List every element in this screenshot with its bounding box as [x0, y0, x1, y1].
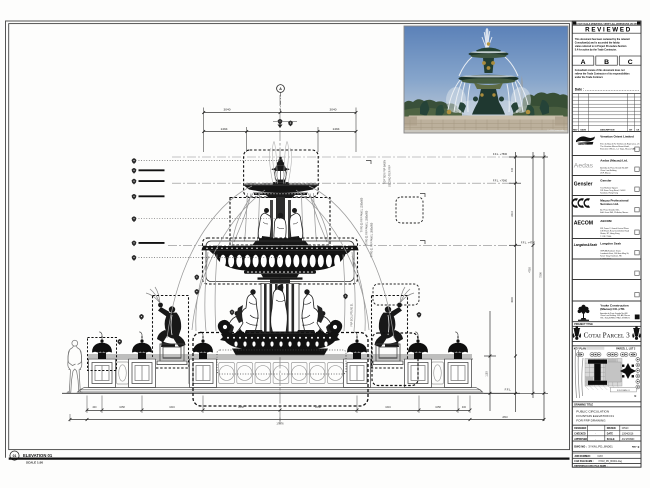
svg-text:400: 400	[92, 406, 97, 409]
svg-text:PROJECT TITLE: PROJECT TITLE	[574, 323, 593, 326]
svg-text:Kowloon, Hong Kong: Kowloon, Hong Kong	[600, 193, 618, 195]
svg-text:3YKM_PD_8N001: 3YKM_PD_8N001	[588, 445, 613, 449]
svg-text:Av. Praia Grande, 665,: Av. Praia Grande, 665,	[600, 209, 620, 212]
svg-text:Edif. Great Will, 12 Andar, Ma: Edif. Great Will, 12 Andar, Macau	[600, 211, 628, 214]
svg-text:SECOND TIER FRP: SECOND TIER FRP	[389, 165, 392, 187]
svg-text:under the Trade Contract.: under the Trade Contract.	[575, 76, 604, 79]
svg-text:Estr. da Baia de N. Senhora da: Estr. da Baia de N. Senhora da Esperanca…	[600, 143, 639, 146]
svg-text:B: B	[604, 59, 609, 66]
svg-text:138 Shatin Rural Committee Roa: 138 Shatin Rural Committee Road	[600, 230, 629, 233]
svg-text:AECOM: AECOM	[600, 219, 612, 223]
svg-text:Date :: Date :	[575, 88, 584, 92]
svg-text:2058: 2058	[238, 406, 244, 409]
svg-text:1494: 1494	[221, 127, 228, 131]
svg-text:CAD FILE NAME :: CAD FILE NAME :	[574, 460, 594, 463]
svg-text:A: A	[581, 59, 586, 66]
svg-text:2310: 2310	[511, 211, 514, 217]
svg-text:440: 440	[511, 167, 514, 172]
svg-text:JOB NUMBER :: JOB NUMBER :	[574, 456, 591, 458]
svg-text:DRAWN: DRAWN	[607, 427, 616, 430]
svg-text:REFERENCE DWG FILE NAME :: REFERENCE DWG FILE NAME :	[574, 464, 607, 467]
svg-text:Two Harbour Square: Two Harbour Square	[600, 187, 617, 190]
svg-text:DWG NO :: DWG NO :	[574, 445, 587, 449]
svg-text:C: C	[628, 59, 633, 66]
svg-text:Venetian Orient Limited: Venetian Orient Limited	[600, 135, 634, 139]
svg-text:TOP TIER FRP BASIN: TOP TIER FRP BASIN	[384, 160, 387, 184]
svg-text:T: 2317 7000: T: 2317 7000	[600, 236, 611, 238]
svg-text:TEL: 853-28788517 FAX: 287885: TEL: 853-28788517 FAX: 28788571	[600, 317, 630, 320]
svg-text:status referred to in Projec: status referred to in Project Procedure …	[575, 45, 627, 48]
svg-text:FRP SCULPTURE 01: FRP SCULPTURE 01	[351, 303, 354, 327]
svg-text:DATE: DATE	[581, 128, 587, 131]
svg-text:PARCEL 1, LOT 2: PARCEL 1, LOT 2	[616, 348, 636, 351]
svg-text:FOUNTAIN ELEVATION 01: FOUNTAIN ELEVATION 01	[576, 414, 614, 418]
svg-text:Gensler: Gensler	[574, 182, 593, 188]
svg-text:F.F.L. +7060: F.F.L. +7060	[493, 178, 508, 182]
svg-text:DO NOT SCALE DRAWINGS. VERIFY: DO NOT SCALE DRAWINGS. VERIFY ALL DIMENS…	[575, 22, 639, 25]
svg-text:FOR FRP DRAWING: FOR FRP DRAWING	[576, 418, 606, 422]
svg-text:3040: 3040	[330, 108, 337, 112]
svg-text:PUBLIC CIRCULATION: PUBLIC CIRCULATION	[576, 410, 609, 414]
svg-text:Shatin, NT, Hong Kong: Shatin, NT, Hong Kong	[600, 232, 619, 235]
svg-text:The Venetian Macao-Resort-Hote: The Venetian Macao-Resort-Hotel,	[600, 145, 630, 148]
svg-text:© rf123 concorde: © rf123 concorde	[547, 129, 565, 132]
svg-text:R E V I E W E D: R E V I E W E D	[585, 27, 631, 34]
svg-text:Aedas (Macau) Ltd.: Aedas (Macau) Ltd.	[600, 159, 628, 163]
svg-text:1616: 1616	[169, 406, 175, 409]
svg-text:8/F, Tower 2, Grand Central Pl: 8/F, Tower 2, Grand Central Plaza	[600, 227, 629, 230]
svg-text:APPROVED: APPROVED	[574, 438, 587, 441]
svg-text:Executive Offices - L2, Taipa,: Executive Offices - L2, Taipa, Macau SAR	[600, 148, 636, 151]
svg-text:TYPE 01 FRP PANEL 1800x950: TYPE 01 FRP PANEL 1800x950	[371, 222, 374, 257]
svg-text:13/04/2016: 13/04/2016	[622, 434, 634, 436]
svg-text:Venetian: Venetian	[578, 143, 587, 146]
svg-text:2058: 2058	[315, 406, 321, 409]
svg-text:4750: 4750	[529, 267, 532, 273]
svg-text:DRAWING TITLE: DRAWING TITLE	[574, 404, 593, 407]
svg-text:F.F.L.: F.F.L.	[505, 388, 512, 392]
svg-text:3YKM_PD_8N001.dwg: 3YKM_PD_8N001.dwg	[598, 461, 622, 463]
svg-text:SCALE 1:50: SCALE 1:50	[26, 460, 43, 464]
svg-text:COTAI PARCEL 3: COTAI PARCEL 3	[584, 331, 631, 339]
svg-text:DESCRIPTION: DESCRIPTION	[600, 129, 615, 131]
svg-text:CHAO: CHAO	[622, 427, 629, 430]
svg-text:CK: CK	[636, 129, 640, 131]
svg-text:400: 400	[462, 406, 467, 409]
svg-text:1058: 1058	[435, 406, 441, 409]
svg-text:AS SHOWN: AS SHOWN	[622, 438, 635, 441]
svg-text:38/F AIA Kowloon Tower,: 38/F AIA Kowloon Tower,	[600, 250, 621, 253]
svg-text:21/F, Macau: 21/F, Macau	[600, 173, 610, 175]
svg-text:17076: 17076	[276, 421, 284, 425]
svg-text:1058: 1058	[119, 406, 125, 409]
svg-text:3600: 3600	[511, 297, 514, 303]
svg-text:Consultant review of this docu: Consultant review of this document does …	[575, 69, 625, 72]
svg-text:REV: REV	[573, 129, 578, 131]
svg-text:Avenida da Praia Grande No.409: Avenida da Praia Grande No.409	[600, 167, 628, 170]
svg-text:2840: 2840	[502, 416, 508, 419]
svg-text:1150: 1150	[486, 371, 489, 377]
svg-text:(Macau) CO.,LTD.: (Macau) CO.,LTD.	[600, 307, 625, 311]
svg-text:CHECKED: CHECKED	[574, 434, 586, 436]
svg-text:3040: 3040	[224, 108, 231, 112]
svg-text:relieve the Trade Contractor o: relieve the Trade Contractor of its resp…	[575, 72, 631, 75]
svg-text:F.F.L. +7500: F.F.L. +7500	[493, 152, 508, 156]
svg-text:DESIGNED: DESIGNED	[574, 428, 586, 430]
svg-text:F.F.L. +4750: F.F.L. +4750	[521, 240, 536, 244]
svg-text:Aedas: Aedas	[574, 163, 594, 170]
svg-text:Langdon Seah: Langdon Seah	[600, 242, 621, 246]
svg-text:1494: 1494	[333, 127, 340, 131]
svg-text:A: A	[279, 87, 282, 91]
svg-text:7500: 7500	[539, 272, 543, 278]
svg-text:Services Ltd.: Services Ltd.	[600, 202, 619, 206]
svg-text:N: N	[634, 394, 636, 398]
svg-text:ELEVATION 01: ELEVATION 01	[23, 453, 53, 458]
svg-text:Gensler: Gensler	[600, 179, 612, 183]
svg-text:FOUNTAIN 01: FOUNTAIN 01	[617, 389, 631, 392]
svg-text:AECOM: AECOM	[574, 221, 593, 227]
svg-text:This document has been reviewe: This document has been reviewed by the r…	[575, 38, 630, 41]
svg-text:SCALE: SCALE	[607, 438, 615, 441]
svg-text:5.4 for action by the Trade Co: 5.4 for action by the Trade Contractor.	[575, 49, 617, 52]
svg-text:DATE: DATE	[607, 433, 614, 436]
svg-text:Consultant(s) and is accorded: Consultant(s) and is accorded the falsit…	[575, 41, 621, 44]
svg-text:Landmark East, 100 How Ming St: Landmark East, 100 How Ming St,	[600, 252, 629, 255]
svg-text:TYPE 02 FRP PANEL 1500x900: TYPE 02 FRP PANEL 1500x900	[366, 210, 369, 245]
svg-text:Langdon&Seah: Langdon&Seah	[574, 243, 597, 247]
svg-text:1616: 1616	[385, 406, 391, 409]
svg-text:31XX: 31XX	[597, 456, 603, 458]
svg-text:REV: REV	[632, 447, 637, 449]
svg-text:TYPE 03 FRP PANEL 1200x800: TYPE 03 FRP PANEL 1200x800	[361, 197, 364, 232]
